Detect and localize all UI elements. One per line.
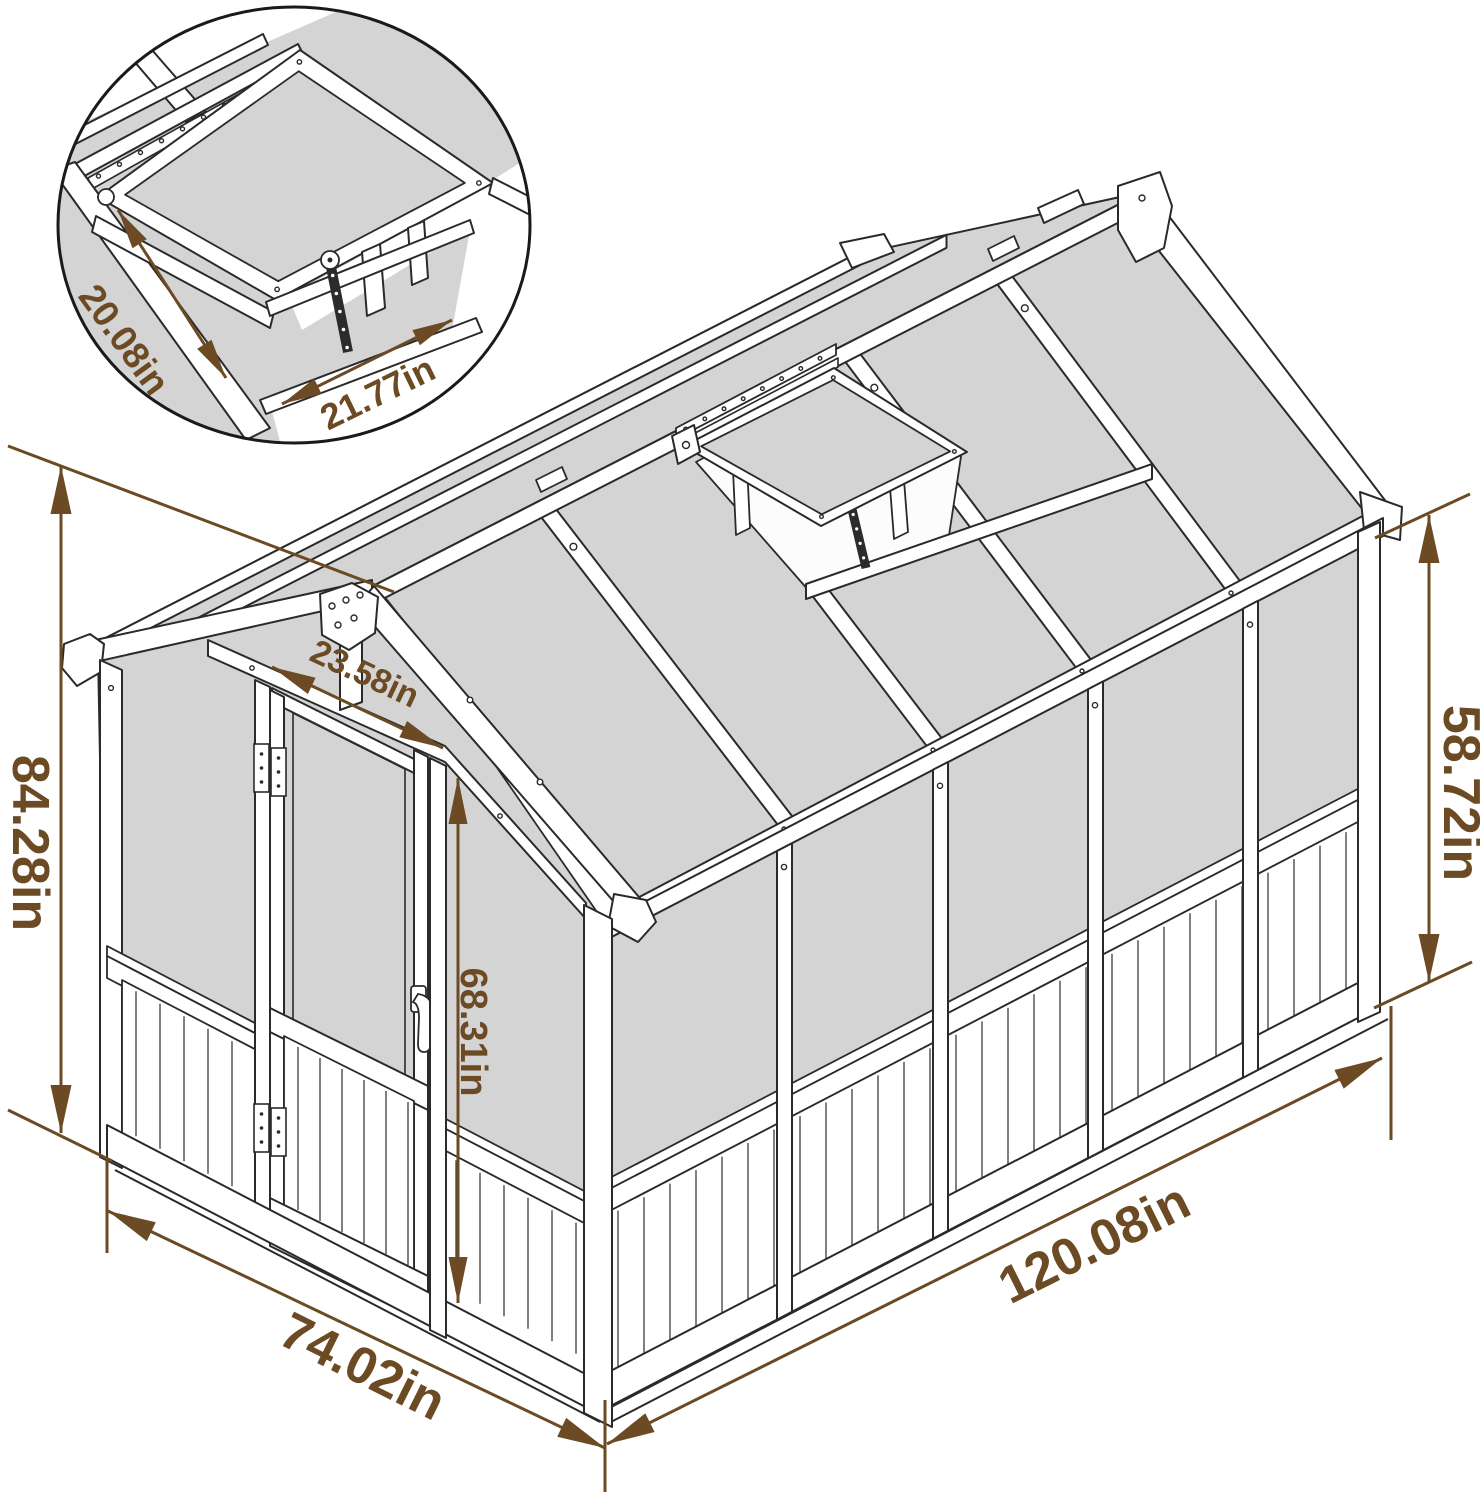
svg-text:84.28in: 84.28in	[1, 755, 59, 931]
svg-text:58.72in: 58.72in	[1432, 705, 1480, 881]
svg-text:68.31in: 68.31in	[452, 968, 494, 1097]
